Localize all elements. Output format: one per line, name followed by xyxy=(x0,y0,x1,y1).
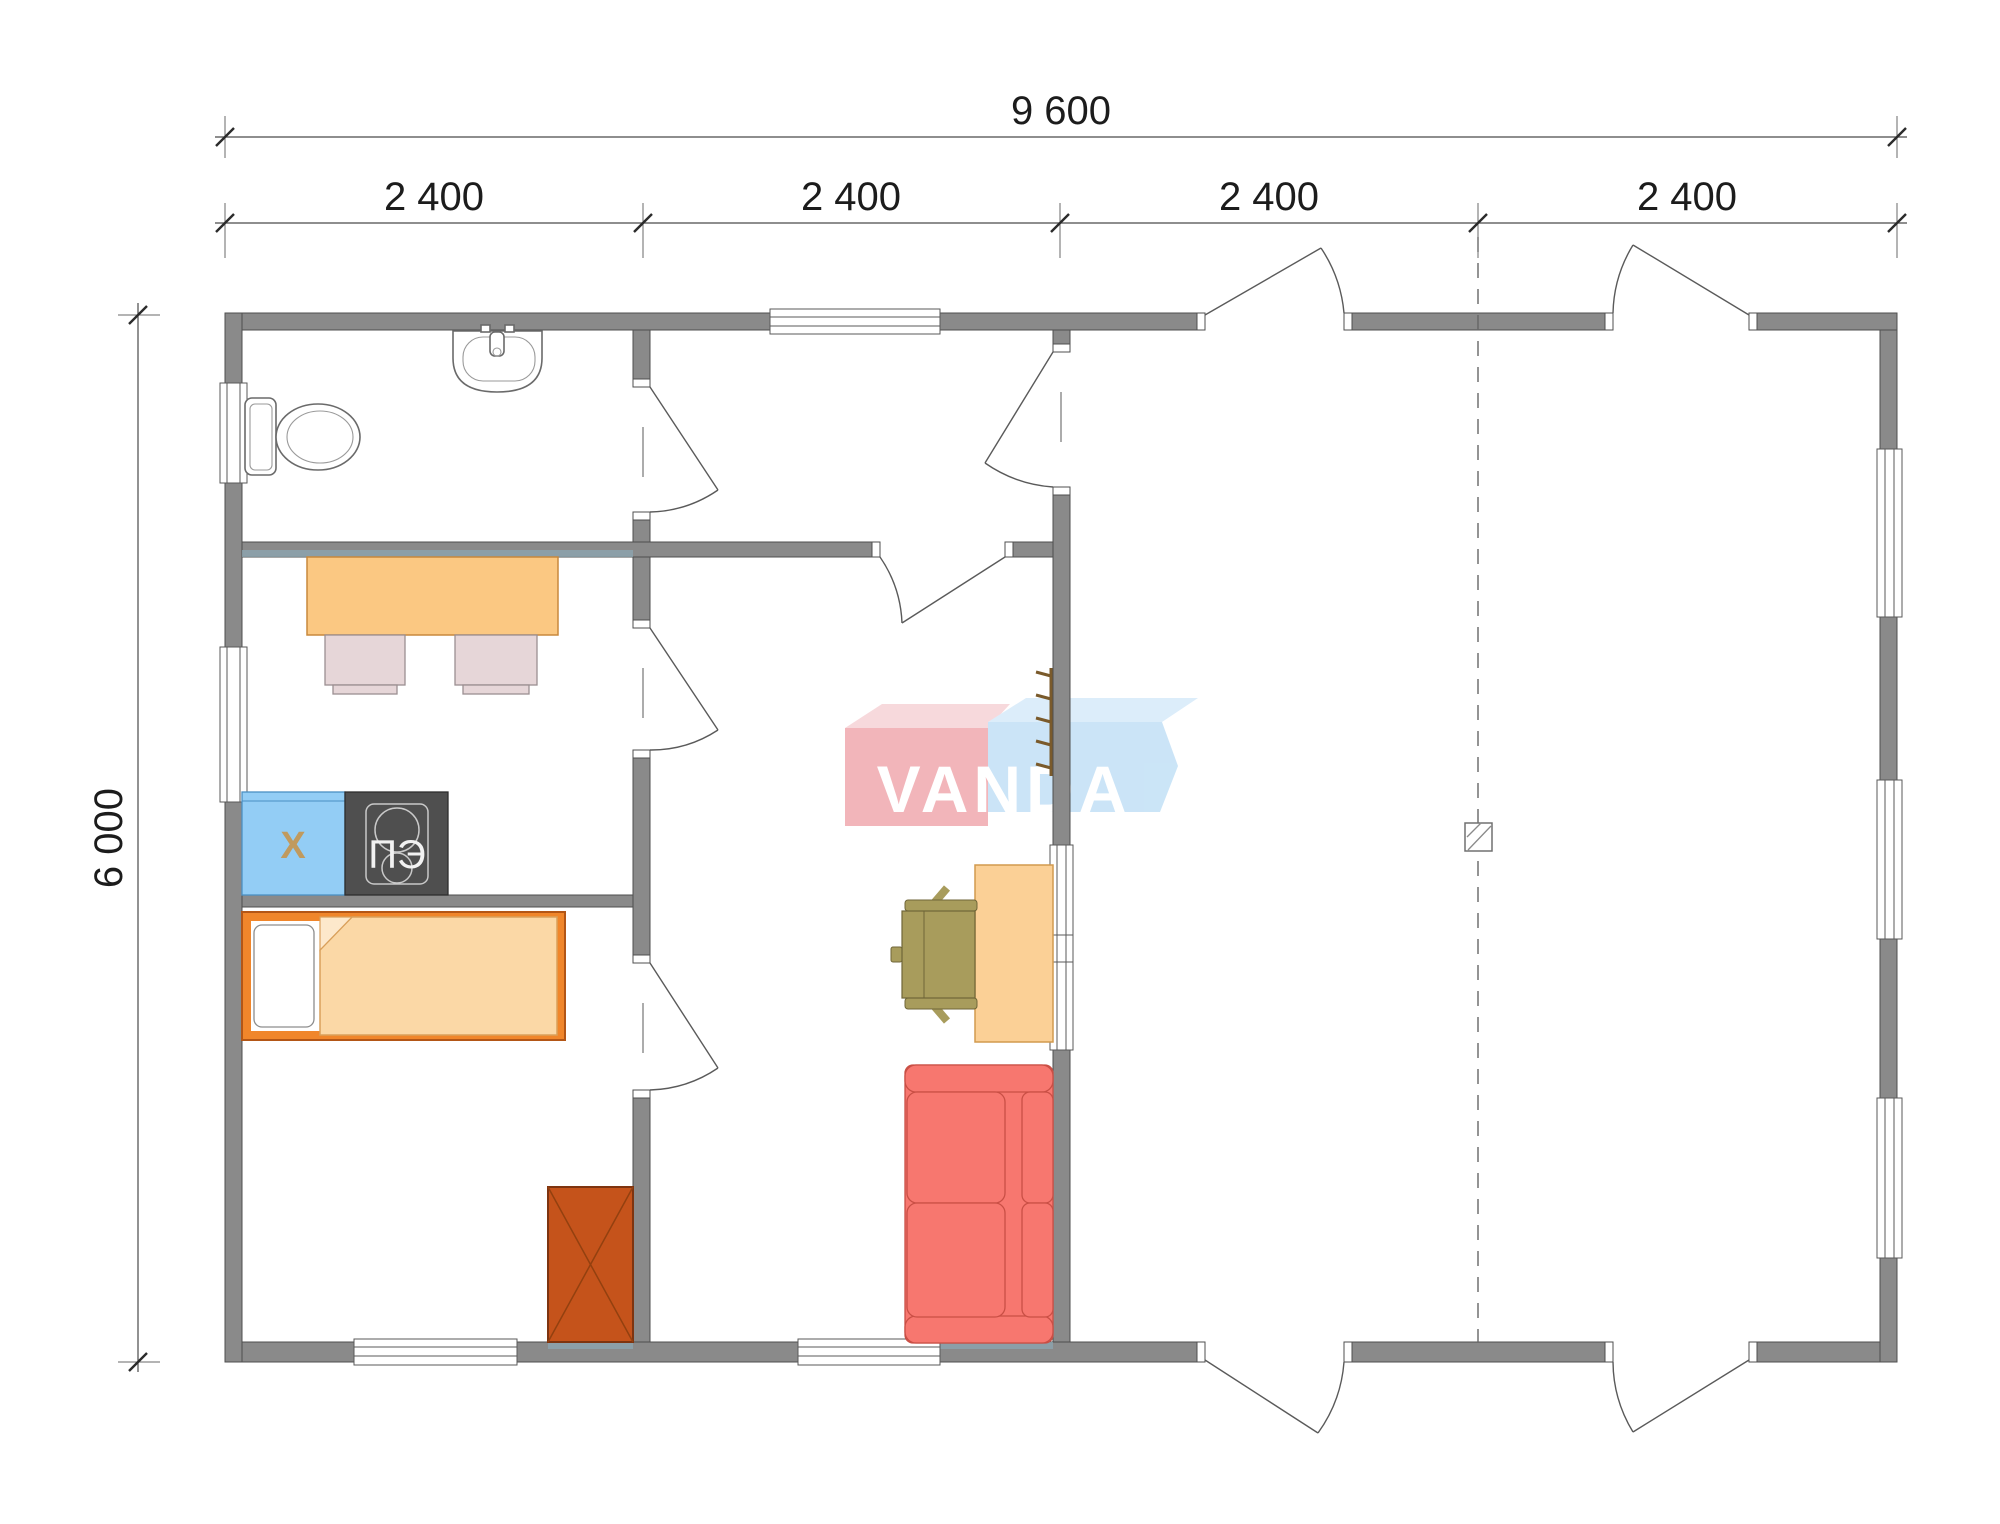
wall-segment xyxy=(1053,330,1070,344)
kitchen-furniture: Х ПЭ xyxy=(242,557,558,895)
wall-segment xyxy=(633,520,650,620)
wall-segment xyxy=(225,1342,354,1362)
wall-segment xyxy=(225,313,242,383)
floor-plan-drawing: VANDA xyxy=(0,0,2000,1524)
bathroom-door xyxy=(643,387,718,512)
dim-label-overall-depth: 6 000 xyxy=(87,788,131,888)
logo-blue-top-face xyxy=(988,698,1198,722)
annex-entry-door-bottom-left xyxy=(1205,1360,1344,1433)
bedroom-door xyxy=(643,963,718,1090)
toilet xyxy=(245,398,360,475)
bathroom-fixtures xyxy=(245,325,542,475)
bed xyxy=(242,912,565,1040)
wall-segment xyxy=(1352,1342,1605,1362)
dim-label-overall-width: 9 600 xyxy=(1011,89,1111,133)
window-top-hallway xyxy=(770,309,940,334)
door-jamb xyxy=(633,379,650,387)
door-jamb xyxy=(633,1090,650,1098)
wall-segment xyxy=(1757,1342,1897,1362)
door-swing-arc xyxy=(1321,248,1344,313)
kitchen-table xyxy=(307,557,558,635)
column-post xyxy=(1465,823,1492,851)
door-swing-arc xyxy=(1318,1362,1344,1433)
door-jamb xyxy=(1749,313,1757,330)
dim-label-module-1: 2 400 xyxy=(384,175,484,219)
pillow xyxy=(254,925,314,1027)
stove-label: ПЭ xyxy=(368,833,426,877)
fridge: Х xyxy=(242,792,345,895)
door-leaf xyxy=(650,628,718,730)
door-leaf xyxy=(1205,248,1321,315)
wall-segment xyxy=(1053,1050,1070,1342)
door-leaf xyxy=(650,963,718,1068)
door-jamb xyxy=(633,955,650,963)
door-jamb xyxy=(1005,542,1013,557)
wall-segment xyxy=(1880,617,1897,780)
desk xyxy=(975,865,1053,1042)
vanda-logo-watermark: VANDA xyxy=(845,698,1198,826)
wardrobe xyxy=(548,1187,633,1342)
wall-segment xyxy=(1880,330,1897,449)
wall-segment xyxy=(1757,313,1897,330)
logo-pink-top-face xyxy=(845,704,1010,728)
wall-segment xyxy=(1053,495,1070,845)
door-leaf xyxy=(985,352,1053,463)
annex-entry-door-bottom-right xyxy=(1613,1360,1749,1432)
wall-segment xyxy=(633,330,650,379)
sofa-back-cushion xyxy=(1022,1092,1053,1203)
door-jamb xyxy=(872,542,880,557)
door-jamb xyxy=(633,620,650,628)
kitchen-door xyxy=(643,628,718,750)
dim-label-module-3: 2 400 xyxy=(1219,175,1319,219)
fridge-label: Х xyxy=(280,825,306,867)
door-swing-arc xyxy=(1613,245,1633,313)
kitchen-chair xyxy=(455,635,537,694)
annex-entry-door-top-left xyxy=(1205,248,1344,315)
dim-label-module-2: 2 400 xyxy=(801,175,901,219)
wall-shadow xyxy=(242,550,633,557)
doors xyxy=(643,245,1749,1433)
door-jamb xyxy=(1344,1342,1352,1362)
structural-axis xyxy=(1465,237,1492,1342)
door-leaf xyxy=(1633,1360,1749,1432)
blanket xyxy=(320,917,557,1035)
wall-segment xyxy=(940,313,1197,330)
window-bottom-bedroom xyxy=(354,1339,517,1365)
sofa xyxy=(905,1065,1053,1343)
floor-plan-page: VANDA xyxy=(0,0,2000,1524)
sofa-seat-cushion xyxy=(907,1203,1005,1317)
door-jamb xyxy=(1197,1342,1205,1362)
door-leaf xyxy=(650,387,718,490)
logo-text: VANDA xyxy=(877,752,1132,826)
wall-segment xyxy=(633,1098,650,1342)
sink xyxy=(453,325,542,392)
bedroom-furniture xyxy=(242,912,633,1342)
kitchen-chair xyxy=(325,635,405,694)
sofa-back-cushion xyxy=(1022,1203,1053,1317)
wall-segment xyxy=(1880,939,1897,1098)
door-swing-arc xyxy=(1613,1362,1633,1432)
hallway-living-door xyxy=(880,557,1005,623)
door-jamb xyxy=(1197,313,1205,330)
wall-segment xyxy=(1880,1258,1897,1362)
door-jamb xyxy=(1749,1342,1757,1362)
door-swing-arc xyxy=(880,557,902,623)
wall-segment xyxy=(225,313,770,330)
door-jamb xyxy=(1053,487,1070,495)
wall-segment xyxy=(242,895,633,907)
door-jamb xyxy=(1605,1342,1613,1362)
wall-shadow xyxy=(548,1342,633,1349)
sofa-seat-cushion xyxy=(907,1092,1005,1203)
dim-label-module-4: 2 400 xyxy=(1637,175,1737,219)
door-leaf xyxy=(1205,1360,1318,1433)
office-chair xyxy=(891,888,977,1021)
wall-segment xyxy=(225,483,242,647)
door-jamb xyxy=(633,750,650,758)
annex-entry-door-top-right xyxy=(1613,245,1749,315)
door-leaf xyxy=(1633,245,1749,315)
door-jamb xyxy=(633,512,650,520)
wall-segment xyxy=(225,802,242,1362)
door-jamb xyxy=(1053,344,1070,352)
stove: ПЭ xyxy=(345,792,448,895)
door-swing-arc xyxy=(985,463,1053,487)
door-jamb xyxy=(1605,313,1613,330)
window-left-bathroom xyxy=(220,383,247,483)
door-swing-arc xyxy=(650,1068,718,1090)
door-swing-arc xyxy=(650,730,718,750)
window-right-lower xyxy=(1877,1098,1902,1258)
door-swing-arc xyxy=(650,490,718,512)
window-right-upper xyxy=(1877,449,1902,617)
window-left-kitchen xyxy=(220,647,247,802)
window-right-middle xyxy=(1877,780,1902,939)
wall-segment xyxy=(633,758,650,955)
door-jamb xyxy=(1344,313,1352,330)
door-leaf xyxy=(902,557,1005,623)
hallway-annex-door xyxy=(985,352,1061,487)
